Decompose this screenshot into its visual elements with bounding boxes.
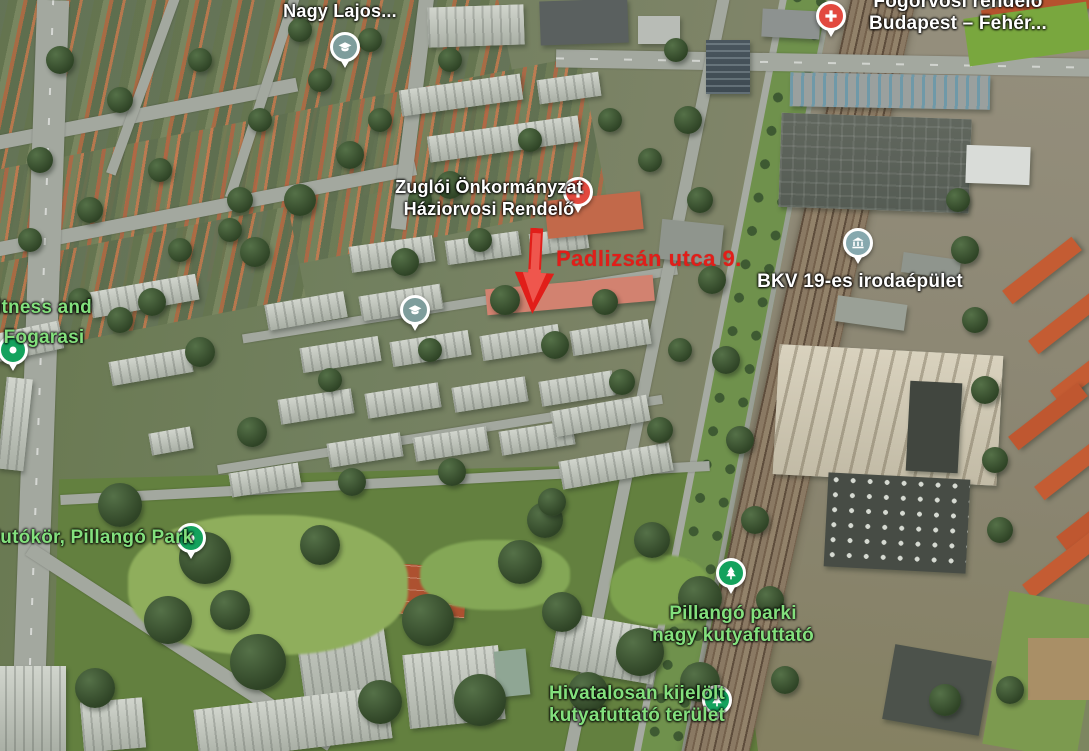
map-building [365,382,442,418]
map-building [778,113,971,214]
map-tree [148,158,172,182]
map-tree [77,197,103,223]
office-pin-bkv[interactable] [843,228,873,268]
map-tree [240,237,270,267]
label-pillango-dog-run[interactable]: Pillangó parki nagy kutyafuttató [652,603,814,647]
map-tree [27,147,53,173]
label-nagy-lajos[interactable]: Nagy Lajos... [283,1,397,22]
map-tree [987,517,1013,543]
map-tree [336,141,364,169]
map-tree [664,38,688,62]
map-tree [598,108,622,132]
map-tree [358,680,402,724]
map-tree [982,447,1008,473]
map-building [790,72,991,109]
map-tree [210,590,250,630]
map-tree [308,68,332,92]
school-pin-nagy-lajos[interactable] [330,32,360,72]
map-tree [638,148,662,172]
map-tree [609,369,635,395]
map-tree [771,666,799,694]
map-building [761,9,820,40]
map-tree [230,634,286,690]
map-tree [592,289,618,315]
tree-pin-dog-run[interactable] [716,558,746,598]
map-tree [218,218,242,242]
map-building [148,427,193,456]
map-building [706,40,750,94]
annotation-text: Padlizsán utca 9. [556,246,742,272]
map-tree [647,417,673,443]
label-bkv-office[interactable]: BKV 19-es irodaépület [757,271,963,293]
map-tree [185,337,215,367]
graduation-cap-icon [400,295,430,325]
label-official-dog-area[interactable]: Hivatalosan kijelölt kutyafuttató terüle… [549,683,725,727]
label-line: Pillangó parki [652,603,814,625]
map-tree [518,128,542,152]
map-tree [438,458,466,486]
map-tree [107,307,133,333]
map-tree [46,46,74,74]
label-zugloi-rendelo[interactable]: Zuglói Önkormányzat Háziorvosi Rendelő [395,176,583,220]
label-fogorvosi-rendelo[interactable]: Fogorvosi rendelő Budapest – Fehér... [869,0,1047,35]
map-building [109,348,194,386]
map-tree [687,187,713,213]
map-tree [996,676,1024,704]
map-tree [168,238,192,262]
label-line: Hivatalosan kijelölt [549,683,725,705]
map-tree [498,540,542,584]
map-tree [468,228,492,252]
map-tree [98,483,142,527]
map-tree [542,592,582,632]
map-tree [107,87,133,113]
map-tree [402,594,454,646]
map-tree [188,48,212,72]
map-tree [318,368,342,392]
map-tree [454,674,506,726]
map-building [300,336,382,373]
map-building [906,381,963,474]
map-tree [284,184,316,216]
map-tree [391,248,419,276]
map-building [0,666,66,751]
map-tree [75,668,115,708]
label-line: Fogorvosi rendelő [869,0,1047,13]
map-tree [438,48,462,72]
map-tree [951,236,979,264]
map-tree [237,417,267,447]
map-tree [227,187,253,213]
map-tree [946,188,970,212]
map-tree [971,376,999,404]
map-building [327,432,404,467]
map-tree [338,468,366,496]
map-tree [490,285,520,315]
map-building [773,344,1003,486]
label-line: Háziorvosi Rendelő [395,198,583,220]
map-building [570,319,652,356]
label-line: nagy kutyafuttató [652,625,814,647]
map-canvas[interactable]: Padlizsán utca 9. [0,0,1089,751]
label-line: kutyafuttató terület [549,705,725,727]
map-tree [668,338,692,362]
map-tree [300,525,340,565]
map-tree [18,228,42,252]
map-tree [712,346,740,374]
bank-building-icon [843,228,873,258]
map-tree [634,522,670,558]
map-tree [538,488,566,516]
graduation-cap-icon [330,32,360,62]
map-tree [138,288,166,316]
map-building [539,0,628,46]
map-tree [741,506,769,534]
tree-icon [716,558,746,588]
map-tree [674,106,702,134]
label-line: Fogarasi [0,323,92,353]
label-line: Zuglói Önkormányzat [395,176,583,198]
map-tree [144,596,192,644]
map-building [824,472,971,573]
map-tree [962,307,988,333]
map-tree [368,108,392,132]
map-lawn [1028,638,1089,700]
map-tree [418,338,442,362]
label-fitness-fogarasi[interactable]: itness and Fogarasi [0,293,92,353]
map-tree [541,331,569,359]
map-tree [726,426,754,454]
medical-cross-icon [816,1,846,31]
map-building [452,376,529,412]
map-tree [358,28,382,52]
label-line: Budapest – Fehér... [869,13,1047,35]
medical-pin-dental-clinic[interactable] [816,1,846,41]
map-building [427,4,524,47]
label-line: itness and [0,293,92,323]
map-building [278,388,355,424]
label-futokor-pillango-park[interactable]: Futókör, Pillangó Park [0,527,194,549]
map-tree [248,108,272,132]
school-pin-estate[interactable] [400,295,430,335]
map-building [965,145,1030,185]
map-tree [929,684,961,716]
